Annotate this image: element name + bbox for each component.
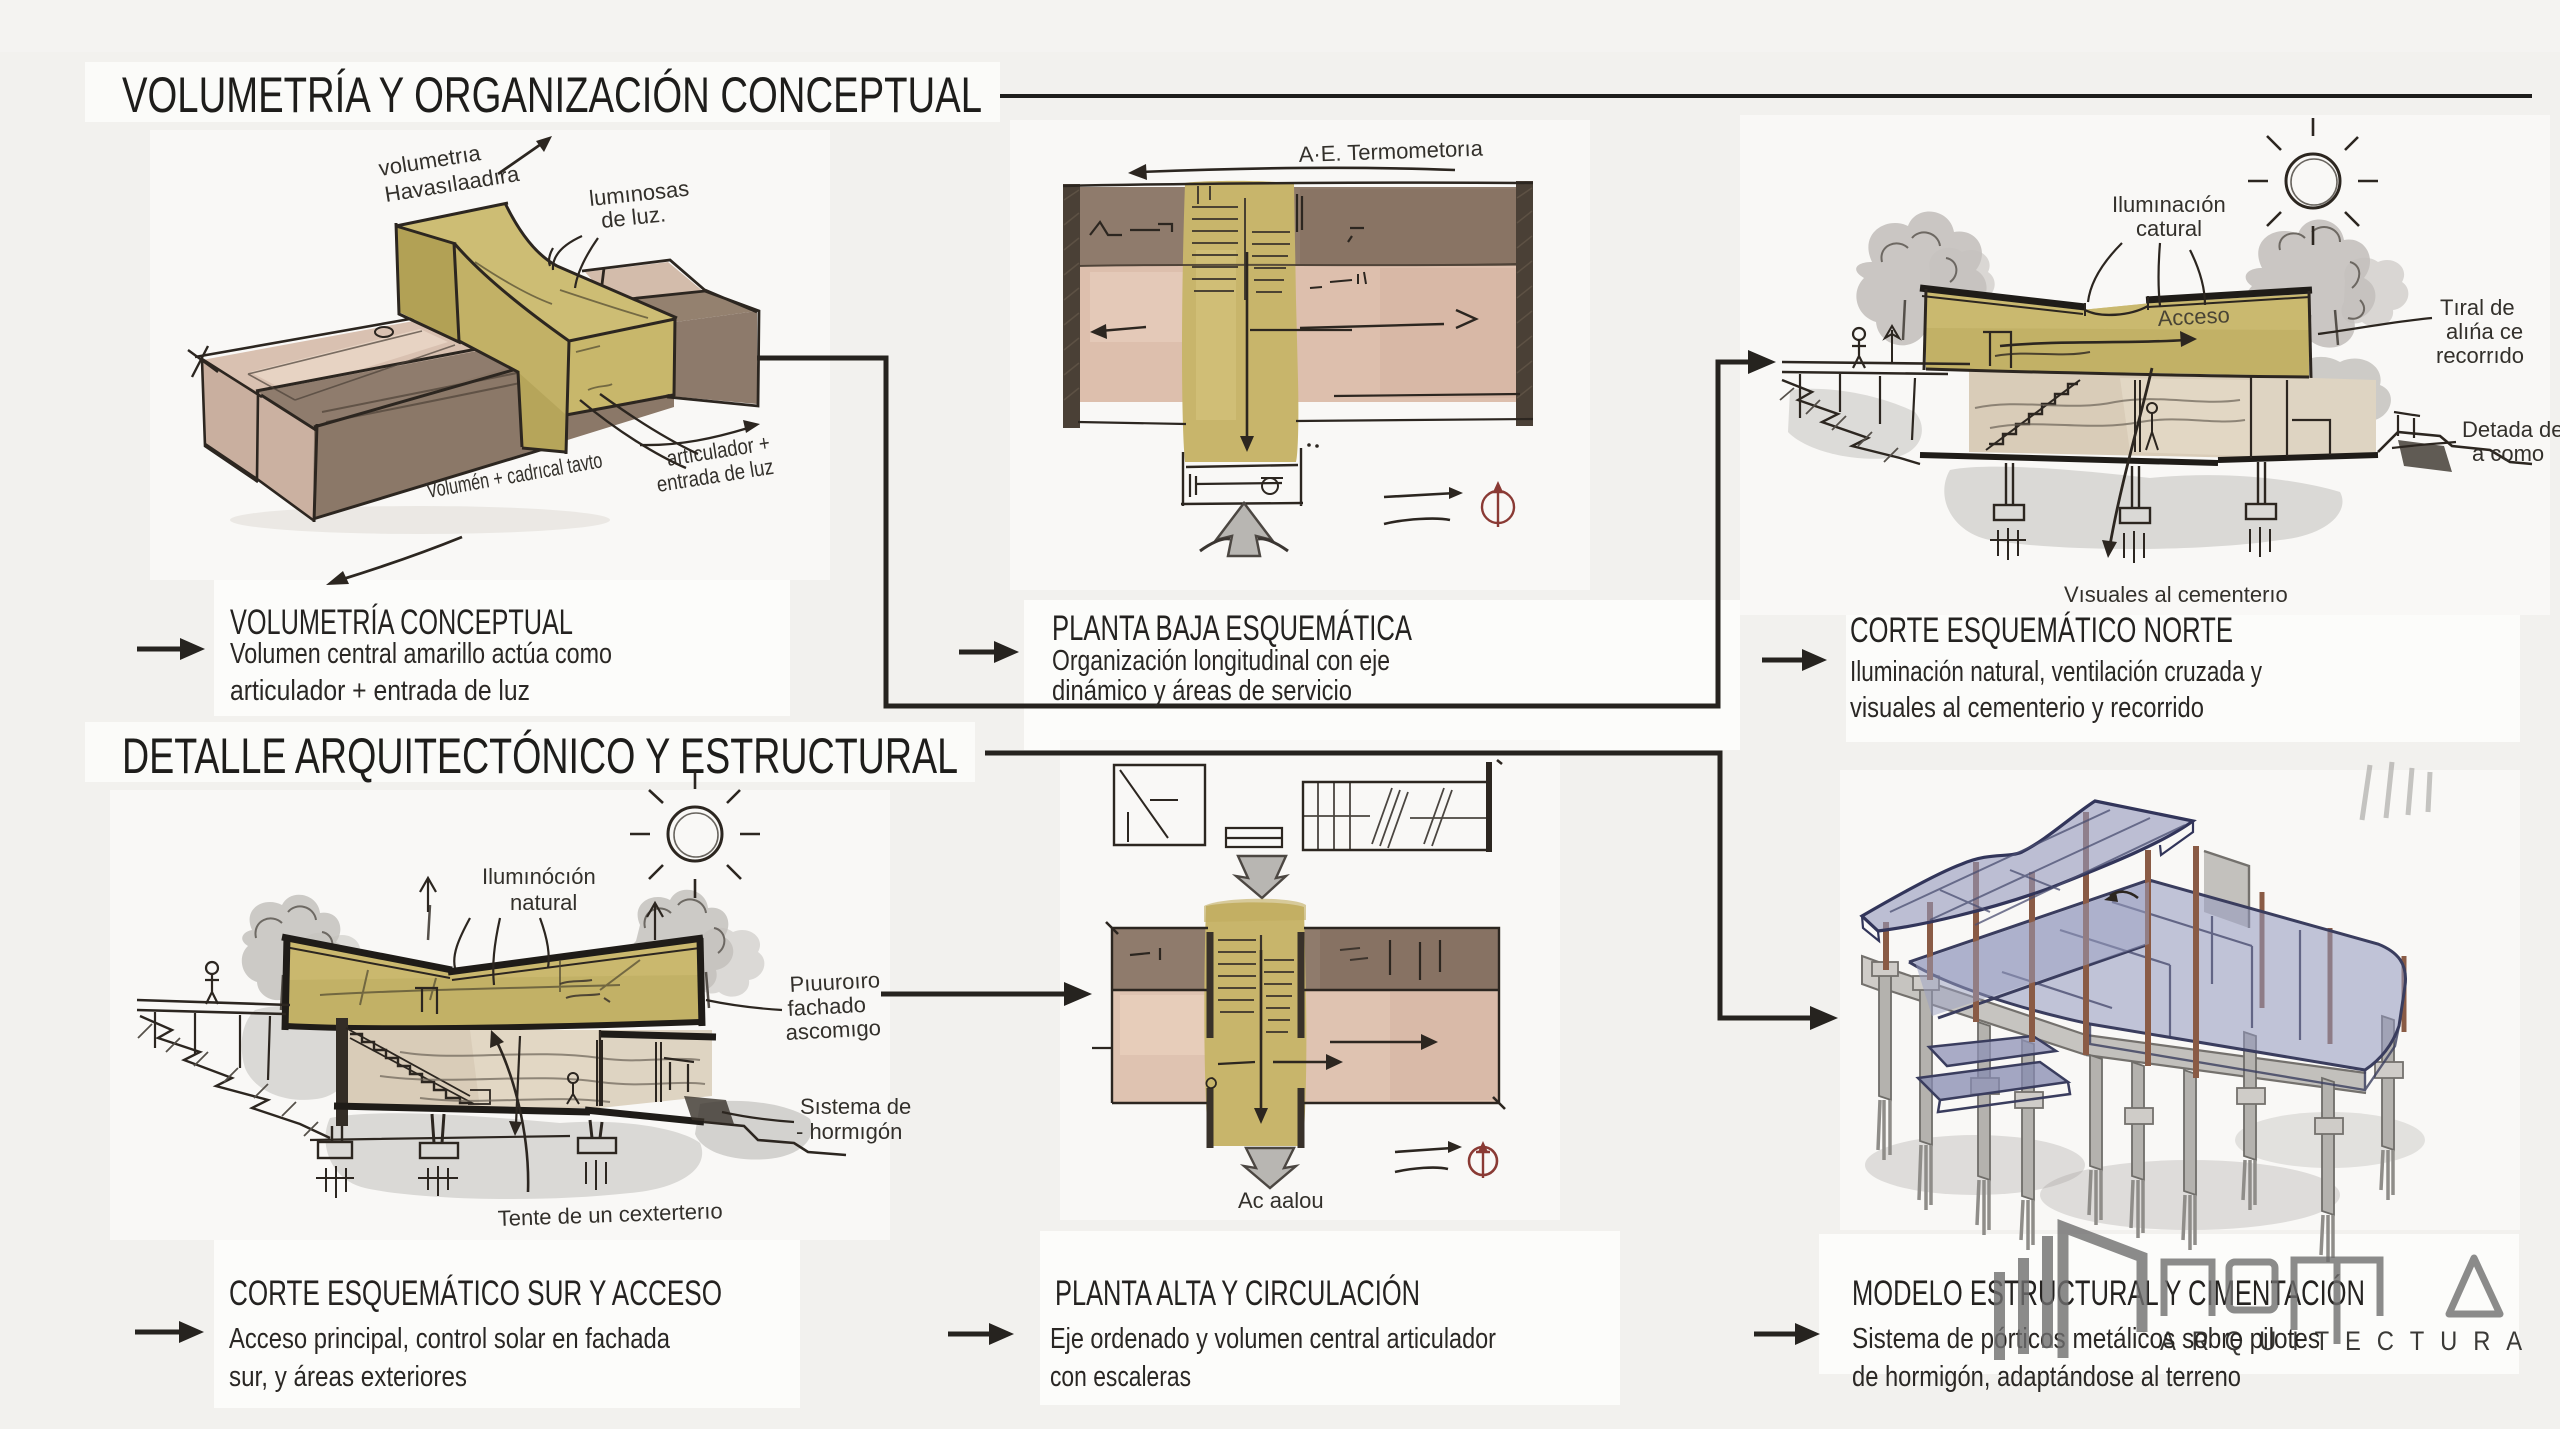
svg-text:Vısuales al cementerıo: Vısuales al cementerıo (2064, 582, 2288, 607)
svg-text:Eje ordenado y volumen central: Eje ordenado y volumen central articulad… (1050, 1323, 1496, 1355)
svg-text:MODELO ESTRUCTURAL Y CIMENTACI: MODELO ESTRUCTURAL Y CIMENTACIÓN (1852, 1274, 2365, 1313)
svg-text:natural: natural (510, 890, 577, 915)
svg-text:sur, y áreas exteriores: sur, y áreas exteriores (229, 1361, 467, 1393)
svg-text:Ilumınócıón: Ilumınócıón (482, 864, 596, 889)
svg-text:con escaleras: con escaleras (1050, 1361, 1191, 1393)
svg-text:ascomıgo: ascomıgo (785, 1015, 882, 1045)
svg-text:Detada de: Detada de (2462, 417, 2560, 442)
svg-text:- hormıgón: - hormıgón (796, 1119, 902, 1144)
svg-text:Ac aalou: Ac aalou (1238, 1188, 1324, 1213)
svg-text:alıńa ce: alıńa ce (2446, 319, 2523, 344)
svg-text:de hormigón, adaptándose al te: de hormigón, adaptándose al terreno (1852, 1361, 2241, 1393)
svg-text:Tıral de: Tıral de (2440, 295, 2515, 320)
svg-text:PLANTA BAJA ESQUEMÁTICA: PLANTA BAJA ESQUEMÁTICA (1052, 609, 1412, 648)
svg-text:PLANTA ALTA Y CIRCULACIÓN: PLANTA ALTA Y CIRCULACIÓN (1055, 1274, 1420, 1313)
svg-text:visuales al cementerio y recor: visuales al cementerio y recorrido (1850, 692, 2204, 724)
svg-text:CORTE ESQUEMÁTICO NORTE: CORTE ESQUEMÁTICO NORTE (1850, 611, 2233, 650)
svg-text:DETALLE ARQUITECTÓNICO Y ESTRU: DETALLE ARQUITECTÓNICO Y ESTRUCTURAL (122, 728, 958, 784)
svg-text:catural: catural (2136, 216, 2202, 241)
svg-text:Acceso principal, control sola: Acceso principal, control solar en facha… (229, 1323, 671, 1355)
svg-text:Acceso: Acceso (2157, 302, 2230, 331)
svg-text:CORTE ESQUEMÁTICO SUR Y ACCESO: CORTE ESQUEMÁTICO SUR Y ACCESO (229, 1274, 722, 1313)
svg-text:Iluminación natural, ventilaci: Iluminación natural, ventilación cruzada… (1850, 656, 2262, 688)
svg-text:recorrıdo: recorrıdo (2436, 343, 2524, 368)
svg-text:a como: a como (2472, 441, 2544, 466)
svg-text:articulador + entrada de luz: articulador + entrada de luz (230, 675, 530, 707)
svg-text:Organización longitudinal con: Organización longitudinal con eje (1052, 645, 1390, 677)
svg-text:Volumen central amarillo actúa: Volumen central amarillo actúa como (230, 638, 612, 670)
svg-text:Ilumınacıón: Ilumınacıón (2112, 192, 2226, 217)
svg-text:VOLUMETRÍA Y ORGANIZACIÓN CONC: VOLUMETRÍA Y ORGANIZACIÓN CONCEPTUAL (122, 67, 982, 123)
svg-text:ARQUITECTURA: ARQUITECTURA (2160, 1326, 2538, 1356)
svg-text:VOLUMETRÍA CONCEPTUAL: VOLUMETRÍA CONCEPTUAL (230, 603, 573, 642)
svg-text:Sıstema de: Sıstema de (800, 1094, 911, 1119)
svg-text:dinámico y áreas de servicio: dinámico y áreas de servicio (1052, 675, 1352, 707)
